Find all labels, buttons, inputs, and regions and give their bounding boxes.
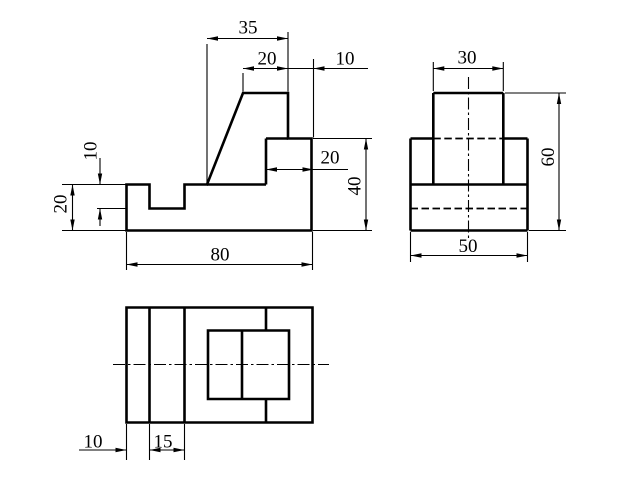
dim-arrowhead bbox=[411, 253, 422, 257]
dim-label-front-10-top: 10 bbox=[336, 49, 355, 70]
dim-label-front-20-top: 20 bbox=[258, 49, 277, 70]
dim-label-front-80: 80 bbox=[211, 245, 230, 266]
front-view: 3520102040102080 bbox=[51, 18, 373, 271]
dim-arrowhead bbox=[243, 66, 254, 70]
dim-label-side-60: 60 bbox=[538, 148, 559, 167]
engineering-drawing: 35201020401020803060501015 bbox=[0, 0, 640, 480]
dim-label-front-35: 35 bbox=[239, 18, 258, 39]
dim-arrowhead bbox=[364, 220, 368, 231]
dim-arrowhead bbox=[207, 36, 218, 40]
dim-arrowhead bbox=[98, 209, 102, 220]
dim-arrowhead bbox=[70, 185, 74, 196]
dim-label-front-20-step: 20 bbox=[321, 148, 340, 169]
dim-arrowhead bbox=[517, 253, 528, 257]
top-view: 1015 bbox=[79, 308, 329, 461]
dim-label-side-50: 50 bbox=[459, 236, 478, 257]
dim-label-top-10: 10 bbox=[84, 432, 103, 453]
dim-arrowhead bbox=[314, 66, 325, 70]
dim-arrowhead bbox=[364, 139, 368, 150]
dim-arrowhead bbox=[492, 66, 503, 70]
dim-arrowhead bbox=[70, 220, 74, 231]
front-thick-edge bbox=[127, 93, 312, 231]
dim-arrowhead bbox=[277, 66, 288, 70]
dim-label-side-30: 30 bbox=[458, 48, 477, 69]
dim-arrowhead bbox=[302, 262, 313, 266]
dim-label-top-15: 15 bbox=[154, 432, 173, 453]
dim-arrowhead bbox=[277, 36, 288, 40]
dim-arrowhead bbox=[433, 66, 444, 70]
dim-arrowhead bbox=[266, 167, 277, 171]
dim-arrowhead bbox=[557, 93, 561, 104]
dim-label-front-20-left: 20 bbox=[51, 195, 72, 214]
dim-arrowhead bbox=[116, 448, 127, 452]
dim-arrowhead bbox=[557, 220, 561, 231]
drawing-page: 35201020401020803060501015 bbox=[0, 0, 640, 480]
dim-arrowhead bbox=[127, 262, 138, 266]
side-view: 306050 bbox=[411, 48, 567, 263]
dim-label-front-10-left: 10 bbox=[81, 142, 102, 161]
dim-arrowhead bbox=[98, 174, 102, 185]
dim-label-front-40: 40 bbox=[345, 177, 366, 196]
dim-arrowhead bbox=[174, 448, 185, 452]
